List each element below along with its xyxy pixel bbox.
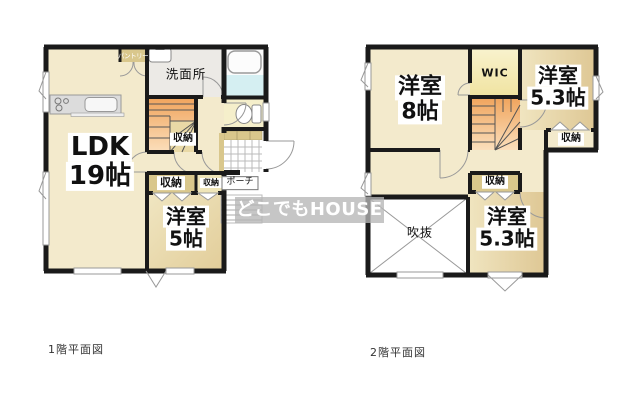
room-label-wic: WIC (481, 67, 508, 80)
room-label-washroom: 洗面所 (166, 64, 207, 83)
room-label-bedroom53-bottom: 洋室 5.3帖 (476, 206, 537, 251)
room-label-bedroom53-top: 洋室 5.3帖 (527, 65, 588, 110)
closet-top-label: 収納 (558, 133, 584, 146)
bath-floor-fill (224, 75, 266, 98)
room-label-bedroom5-line2: 5帖 (166, 228, 206, 250)
closet-under-stairs-label: 収納 (170, 133, 196, 146)
watermark: どこでもHOUSE (235, 197, 384, 223)
bathtub-icon (228, 51, 261, 73)
room-label-bedroom5: 洋室 5帖 (163, 206, 209, 251)
kitchen-counter-icon (50, 95, 124, 117)
closet-main-label: 収納 (157, 176, 185, 190)
room-label-ldk: LDK 19帖 (66, 133, 134, 191)
room-label-ldk-line1: LDK (68, 133, 132, 162)
floor1-caption: 1階平面図 (48, 341, 104, 357)
room-label-bedroom53-top-line1: 洋室 (535, 65, 581, 87)
room-label-ldk-line2: 19帖 (66, 162, 134, 191)
room-label-bedroom8-line2: 8帖 (398, 100, 441, 125)
room-label-bedroom53-top-line2: 5.3帖 (527, 87, 588, 109)
room-label-bedroom8: 洋室 8帖 (395, 75, 445, 124)
entrance-edge-strip (219, 133, 224, 172)
room-label-bedroom8-line1: 洋室 (395, 75, 445, 100)
floor2-caption: 2階平面図 (370, 344, 426, 360)
toilet-icon (236, 105, 261, 124)
room-label-pantry: パントリー (118, 50, 148, 60)
porch-label: ポーチ (221, 176, 258, 190)
entrance-tile-floor (224, 140, 262, 172)
room-label-bedroom53-bottom-line2: 5.3帖 (476, 228, 537, 250)
sink-icon (85, 98, 117, 112)
room-label-bedroom5-line1: 洋室 (163, 206, 209, 228)
room-label-bedroom53-bottom-line1: 洋室 (484, 206, 530, 228)
closet-small-label: 収納 (200, 178, 222, 188)
entrance-step-strip (224, 131, 262, 140)
closet-mid-label: 収納 (482, 176, 508, 189)
floorplan-canvas: LDK 19帖 洋室 5帖 洗面所 パントリー 収納 収納 収納 ポーチ 洋室 … (0, 0, 640, 419)
void-label: 吹抜 (407, 224, 433, 241)
